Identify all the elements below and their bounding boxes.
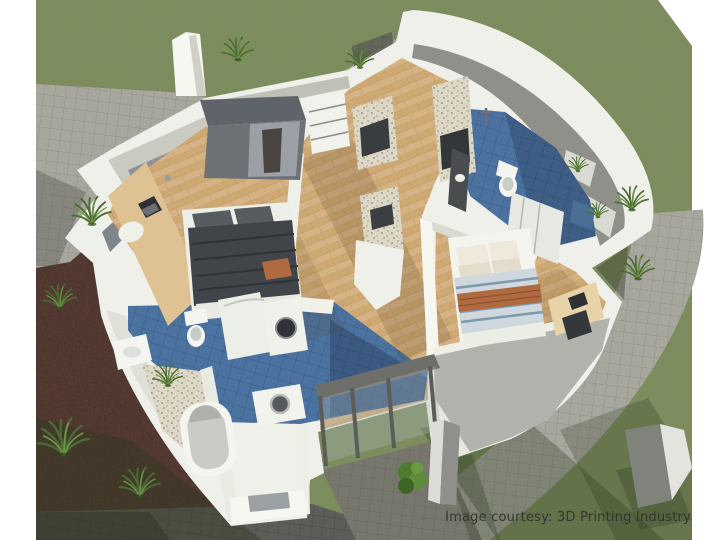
floorplan-illustration: [0, 0, 720, 540]
desk-lamp: [165, 175, 171, 181]
rendered-image: Image courtesy: 3D Printing Industry: [0, 0, 720, 540]
pillow: [488, 240, 520, 261]
basin: [455, 174, 465, 182]
bed-2: [448, 228, 546, 348]
caption: Image courtesy: 3D Printing Industry: [445, 510, 691, 526]
